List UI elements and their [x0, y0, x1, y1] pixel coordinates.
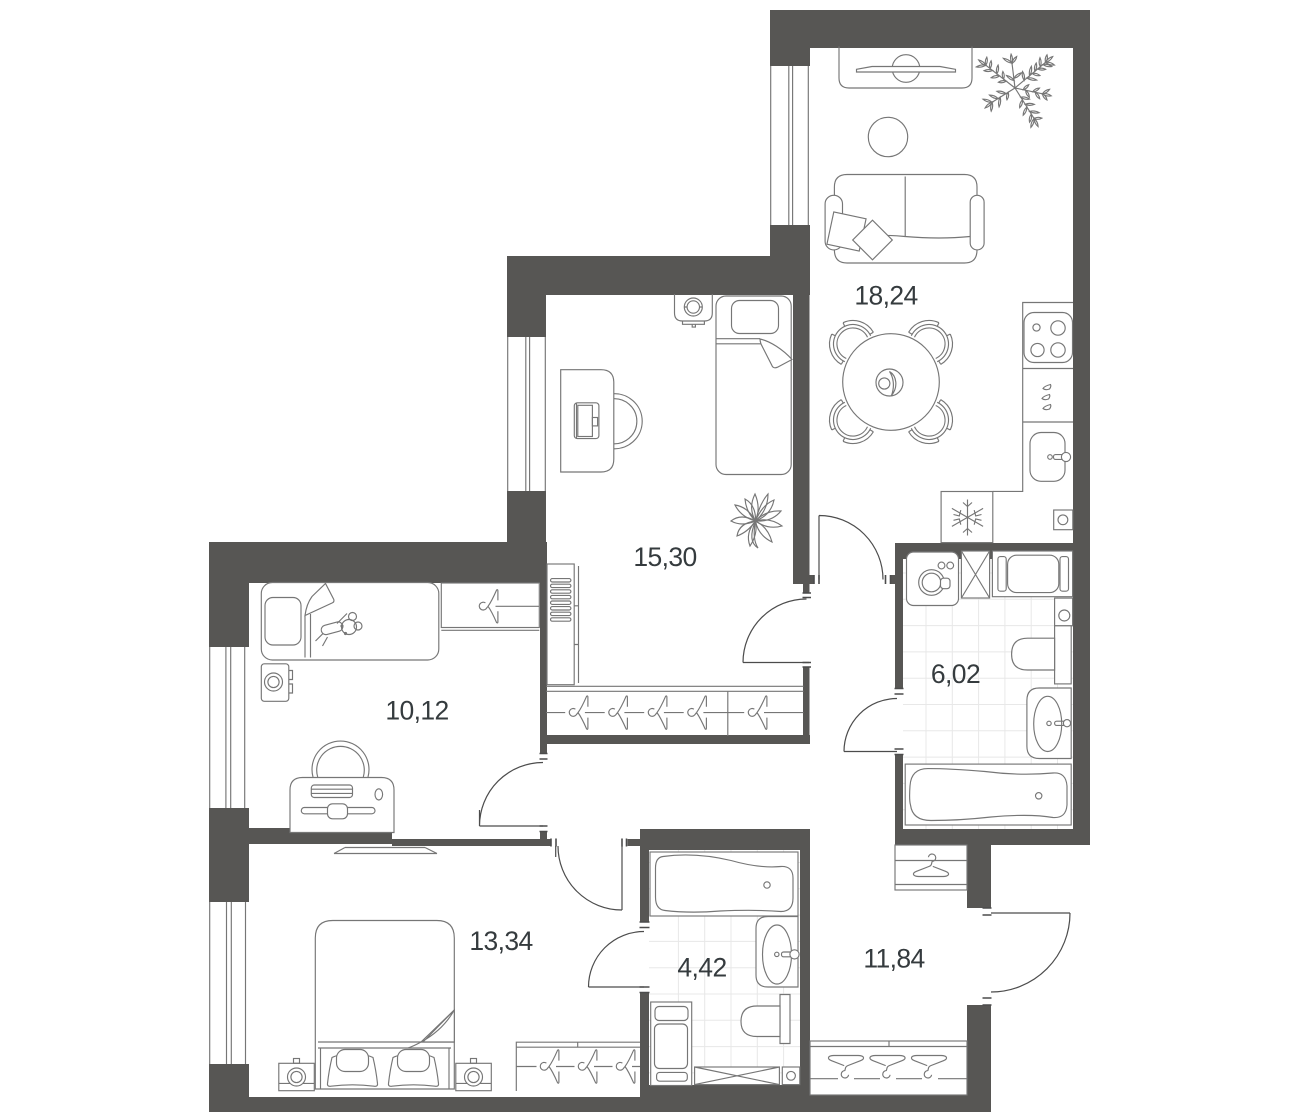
- svg-text:11,84: 11,84: [863, 944, 924, 974]
- svg-text:18,24: 18,24: [854, 281, 917, 311]
- svg-text:6,02: 6,02: [931, 659, 980, 689]
- svg-text:15,30: 15,30: [633, 542, 696, 572]
- svg-text:10,12: 10,12: [385, 696, 448, 726]
- svg-text:13,34: 13,34: [469, 926, 532, 956]
- svg-text:4,42: 4,42: [677, 953, 726, 983]
